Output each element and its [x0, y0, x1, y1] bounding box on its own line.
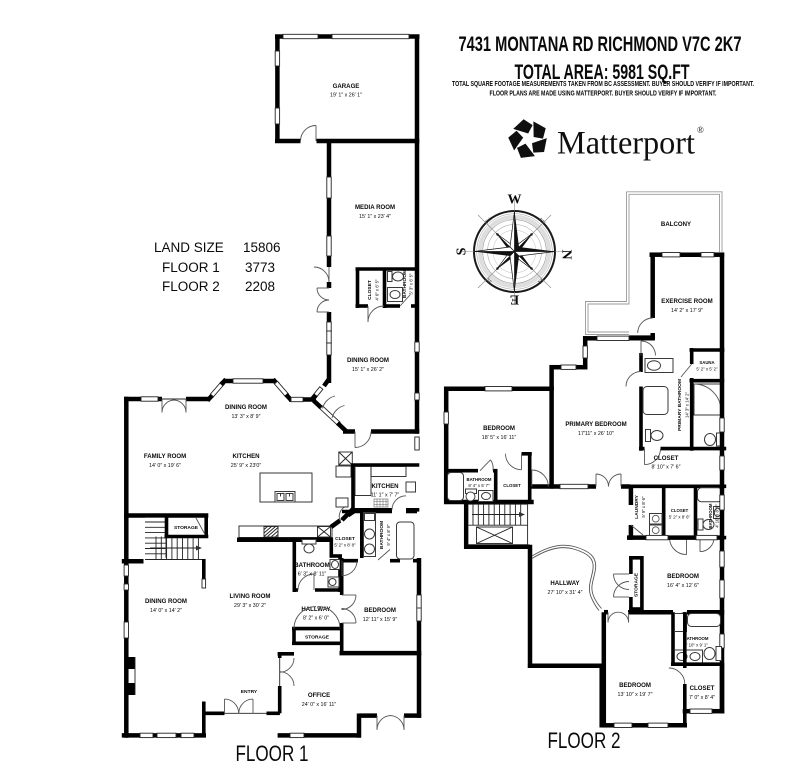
svg-text:S: S: [455, 247, 470, 255]
svg-text:CLOSET: CLOSET: [503, 483, 521, 488]
svg-text:®: ®: [697, 125, 704, 135]
svg-text:14′ 2″ x 17′ 9″: 14′ 2″ x 17′ 9″: [671, 308, 703, 314]
svg-text:KITCHEN: KITCHEN: [232, 453, 259, 460]
svg-text:BEDROOM: BEDROOM: [483, 425, 515, 432]
svg-text:STORAGE: STORAGE: [305, 635, 330, 641]
svg-text:24′ 0″ x 16′ 11″: 24′ 0″ x 16′ 11″: [302, 702, 337, 708]
svg-text:BEDROOM: BEDROOM: [667, 573, 699, 580]
svg-text:7431 MONTANA RD RICHMOND V7C 2: 7431 MONTANA RD RICHMOND V7C 2K7: [459, 33, 742, 56]
svg-text:DINING ROOM: DINING ROOM: [225, 404, 267, 411]
svg-text:16′ 4″ x 12′ 6″: 16′ 4″ x 12′ 6″: [667, 583, 699, 589]
svg-text:11′ 1″ x 7′ 7″: 11′ 1″ x 7′ 7″: [371, 493, 400, 499]
svg-text:E: E: [510, 291, 519, 306]
svg-text:KITCHEN: KITCHEN: [371, 483, 398, 490]
svg-text:BATHROOM: BATHROOM: [708, 503, 713, 528]
svg-text:BEDROOM: BEDROOM: [364, 607, 396, 614]
svg-text:Matterport: Matterport: [557, 126, 695, 162]
svg-text:BATHROOM: BATHROOM: [684, 636, 709, 641]
svg-text:29′ 3″ x 30′ 2″: 29′ 3″ x 30′ 2″: [234, 603, 266, 609]
svg-text:FLOOR 2: FLOOR 2: [162, 279, 220, 294]
svg-text:14′ 0″ x 14′ 2″: 14′ 0″ x 14′ 2″: [150, 608, 182, 614]
svg-text:25′ 9″ x 23′0″: 25′ 9″ x 23′0″: [231, 463, 262, 469]
svg-text:LAND SIZE: LAND SIZE: [154, 240, 224, 255]
svg-text:6′ 3″ x 8′ 11″: 6′ 3″ x 8′ 11″: [298, 572, 327, 578]
svg-text:MEDIA ROOM: MEDIA ROOM: [355, 204, 395, 211]
svg-text:8′ 2″ x 6′ 0″: 8′ 2″ x 6′ 0″: [303, 616, 329, 622]
svg-text:27′ 10″ x 31′ 4″: 27′ 10″ x 31′ 4″: [548, 590, 583, 596]
svg-text:DINING ROOM: DINING ROOM: [347, 357, 389, 364]
svg-text:14′ 3″ x 14′ 2″: 14′ 3″ x 14′ 2″: [685, 392, 690, 418]
svg-text:W: W: [508, 193, 522, 208]
svg-text:2208: 2208: [245, 279, 275, 294]
svg-text:17′11″ x 26′ 10″: 17′11″ x 26′ 10″: [578, 431, 614, 437]
svg-text:13′ 3″ x 8′ 9″: 13′ 3″ x 8′ 9″: [231, 414, 260, 420]
svg-text:8′ 10″ x 9′ 1″: 8′ 10″ x 9′ 1″: [684, 643, 708, 648]
svg-text:8′ 10″ x 7′ 6″: 8′ 10″ x 7′ 6″: [651, 465, 680, 471]
svg-text:5′ 2″ x 5′ 2″: 5′ 2″ x 5′ 2″: [696, 367, 718, 372]
svg-text:BALCONY: BALCONY: [661, 221, 691, 228]
svg-text:ENTRY: ENTRY: [241, 689, 258, 695]
svg-text:FLOOR 1: FLOOR 1: [236, 741, 309, 766]
svg-text:14′ 0″ x 19′ 6″: 14′ 0″ x 19′ 6″: [149, 463, 181, 469]
svg-text:EXERCISE ROOM: EXERCISE ROOM: [661, 298, 712, 305]
svg-text:SAUNA: SAUNA: [699, 360, 714, 365]
svg-text:STORAGE: STORAGE: [634, 572, 640, 597]
svg-text:TOTAL SQUARE FOOTAGE MEASUREME: TOTAL SQUARE FOOTAGE MEASUREMENTS TAKEN …: [452, 79, 754, 88]
svg-text:9′ 4″ x 8′ 9″: 9′ 4″ x 8′ 9″: [386, 524, 391, 546]
svg-text:FLOOR 2: FLOOR 2: [548, 728, 621, 753]
svg-text:18′ 5″ x 16′ 11″: 18′ 5″ x 16′ 11″: [482, 435, 517, 441]
svg-text:3773: 3773: [245, 260, 275, 275]
svg-text:HALLWAY: HALLWAY: [550, 580, 579, 587]
svg-text:CLOSET: CLOSET: [690, 685, 715, 692]
svg-text:12′ 11″ x 15′ 9″: 12′ 11″ x 15′ 9″: [363, 617, 398, 623]
svg-text:STORAGE: STORAGE: [174, 525, 199, 531]
svg-text:BEDROOM: BEDROOM: [619, 682, 651, 689]
svg-text:CLOSET: CLOSET: [671, 508, 689, 513]
svg-text:5′ 2″ x 8′ 8″: 5′ 2″ x 8′ 8″: [334, 543, 356, 548]
svg-text:4′ 10″ x 8′ 6″: 4′ 10″ x 8′ 6″: [715, 504, 720, 528]
svg-text:FAMILY ROOM: FAMILY ROOM: [144, 453, 186, 460]
svg-text:DINING ROOM: DINING ROOM: [145, 598, 187, 605]
svg-text:CLOSET: CLOSET: [367, 280, 373, 300]
svg-text:15806: 15806: [243, 240, 281, 255]
svg-text:BATHROOM: BATHROOM: [379, 521, 385, 549]
svg-text:7′ 0″ x 8′ 4″: 7′ 0″ x 8′ 4″: [689, 695, 715, 701]
svg-text:BATHROOM: BATHROOM: [294, 562, 329, 569]
svg-text:13′ 10″ x 19′ 7″: 13′ 10″ x 19′ 7″: [618, 692, 653, 698]
svg-text:19′ 1″ x 26′ 1″: 19′ 1″ x 26′ 1″: [330, 93, 362, 99]
svg-text:4′ 6″ x 6′ 5″: 4′ 6″ x 6′ 5″: [375, 279, 380, 301]
svg-text:PRIMARY BEDROOM: PRIMARY BEDROOM: [565, 421, 626, 428]
svg-text:8′ 4″ x 5′ 7″: 8′ 4″ x 5′ 7″: [468, 483, 490, 488]
svg-text:5′ 2″ x 8′ 6″: 5′ 2″ x 8′ 6″: [669, 515, 691, 520]
svg-text:CLOSET: CLOSET: [654, 455, 679, 462]
svg-text:N: N: [559, 249, 574, 259]
svg-text:LAUNDRY: LAUNDRY: [634, 494, 640, 518]
svg-text:GARAGE: GARAGE: [333, 83, 360, 90]
svg-text:15′ 1″ x 23′ 4″: 15′ 1″ x 23′ 4″: [359, 214, 391, 220]
svg-text:PRIMARY BATHROOM: PRIMARY BATHROOM: [677, 379, 683, 431]
svg-text:FLOOR PLANS ARE MADE USING MAT: FLOOR PLANS ARE MADE USING MATTERPORT. B…: [490, 89, 717, 98]
svg-text:BATHROOM: BATHROOM: [467, 477, 492, 482]
svg-text:15′ 1″ x 26′ 2″: 15′ 1″ x 26′ 2″: [352, 367, 384, 373]
svg-text:LIVING ROOM: LIVING ROOM: [230, 593, 271, 600]
svg-text:FLOOR 1: FLOOR 1: [162, 260, 220, 275]
svg-text:OFFICE: OFFICE: [308, 692, 330, 699]
svg-text:BATHROOM: BATHROOM: [402, 270, 408, 298]
svg-text:CLOSET: CLOSET: [335, 536, 355, 542]
svg-text:5′ 9″ x 8′ 6″: 5′ 9″ x 8′ 6″: [641, 496, 646, 518]
svg-text:5′ 3″ x 6′ 5″: 5′ 3″ x 6′ 5″: [409, 273, 414, 295]
